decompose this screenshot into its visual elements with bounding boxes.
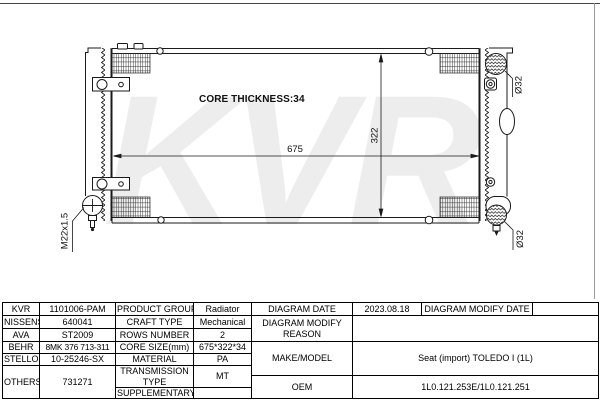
brand-ava: AVA (3, 329, 40, 342)
drain-leader (73, 208, 85, 253)
table-row: KVR 1101006-PAM PRODUCT GROUP Radiator D… (3, 303, 599, 316)
drain-thread-label: M22x1.5 (60, 213, 71, 249)
spec-label-product-group: PRODUCT GROUP (116, 303, 194, 316)
spec-value-product-group: Radiator (194, 303, 252, 316)
number-behr: 8MK 376 713-311 (40, 342, 116, 354)
brand-others: OTHERS (3, 366, 40, 399)
number-ava: ST2009 (40, 329, 116, 342)
fins-bottom-left (112, 197, 150, 218)
bolt-top-inner (489, 82, 492, 85)
mount-hole-top-left (157, 48, 163, 54)
number-kvr: 1101006-PAM (40, 303, 116, 316)
dim-height-arrow-top (379, 55, 383, 63)
spec-label-craft-type: CRAFT TYPE (116, 316, 194, 329)
bracket-bottom-hole-large (97, 179, 107, 189)
spec-value-core-size: 675*322*34 (194, 342, 252, 354)
oem-value: 1L0.121.253E/1L0.121.251 (353, 376, 599, 399)
dim-height-label: 322 (370, 128, 381, 144)
mount-hole-top-right (425, 48, 433, 56)
fins-bottom-right (440, 197, 479, 218)
inlet-pipe-hatch (486, 54, 506, 74)
core-thickness-label: CORE THICKNESS:34 (199, 94, 305, 105)
side-bump (500, 109, 515, 135)
outlet-stem (493, 226, 500, 232)
brand-nissens: NISSENS (3, 316, 40, 329)
bracket-bottom-hole-small (119, 182, 124, 187)
bracket-top-hole-small (119, 82, 124, 87)
top-tab-2 (134, 44, 143, 50)
outlet-diameter-label: Ø32 (515, 230, 526, 248)
spec-label-core-size: CORE SIZE(mm) (116, 342, 194, 354)
left-serrated-edge (101, 48, 106, 221)
mount-hole-bottom-left (158, 217, 164, 223)
number-nissens: 640041 (40, 316, 116, 329)
make-model-label: MAKE/MODEL (252, 342, 353, 376)
diagram-modify-reason-value (353, 316, 599, 342)
right-tank (480, 48, 515, 236)
table-row: NISSENS 640041 CRAFT TYPE Mechanical DIA… (3, 316, 599, 329)
dim-width-arrow-right (471, 154, 479, 158)
radiator-technical-drawing: KVR (0, 0, 600, 300)
outlet-stem-tip (495, 232, 499, 237)
right-serrated-edge (484, 48, 489, 221)
drain-stem-lower (91, 221, 95, 228)
diagram-modify-date-value (533, 303, 599, 316)
fins-top-right (440, 54, 479, 74)
mount-hole-bottom-right (425, 216, 433, 224)
diagram-modify-date-label: DIAGRAM MODIFY DATE (422, 303, 533, 316)
make-model-value: Seat (import) TOLEDO I (1L) (353, 342, 599, 376)
spec-table: KVR 1101006-PAM PRODUCT GROUP Radiator D… (2, 302, 599, 399)
diagram-date-label: DIAGRAM DATE (252, 303, 353, 316)
brand-behr: BEHR (3, 342, 40, 354)
spec-value-transmission-type: MT (194, 366, 252, 388)
inlet-leader (505, 71, 513, 97)
outlet-pipe-hatch (487, 206, 506, 225)
spec-value-supplementary (194, 388, 252, 399)
fins-top-left (112, 54, 150, 74)
brand-kvr: KVR (3, 303, 40, 316)
number-others: 731271 (40, 366, 116, 399)
brand-stellox: STELLOX (3, 354, 40, 366)
bracket-top-hole-large (97, 80, 107, 90)
diagram-modify-reason-label: DIAGRAM MODIFY REASON (252, 316, 353, 342)
spec-label-transmission-type: TRANSMISSION TYPE (116, 366, 194, 388)
table-row: BEHR 8MK 376 713-311 CORE SIZE(mm) 675*3… (3, 342, 599, 354)
top-tab-1 (118, 44, 128, 50)
drain-stem-tip (91, 228, 94, 231)
bolt-bottom-inner (489, 180, 492, 183)
spec-value-material: PA (194, 354, 252, 366)
spec-label-rows-number: ROWS NUMBER (116, 329, 194, 342)
drain-stem-upper (89, 216, 97, 221)
left-tank-outline (86, 48, 102, 196)
diagram-date-value: 2023.08.18 (353, 303, 422, 316)
inlet-diameter-label: Ø32 (514, 76, 525, 94)
kvr-watermark: KVR (103, 58, 481, 264)
spec-label-supplementary: SUPPLEMENTARY (116, 388, 194, 399)
outlet-leader (505, 222, 514, 251)
number-stellox: 10-25246-SX (40, 354, 116, 366)
dim-width-label: 675 (287, 144, 303, 155)
spec-value-craft-type: Mechanical (194, 316, 252, 329)
spec-value-rows-number: 2 (194, 329, 252, 342)
oem-label: OEM (252, 376, 353, 399)
spec-label-material: MATERIAL (116, 354, 194, 366)
catalog-page: KVR (0, 0, 600, 402)
